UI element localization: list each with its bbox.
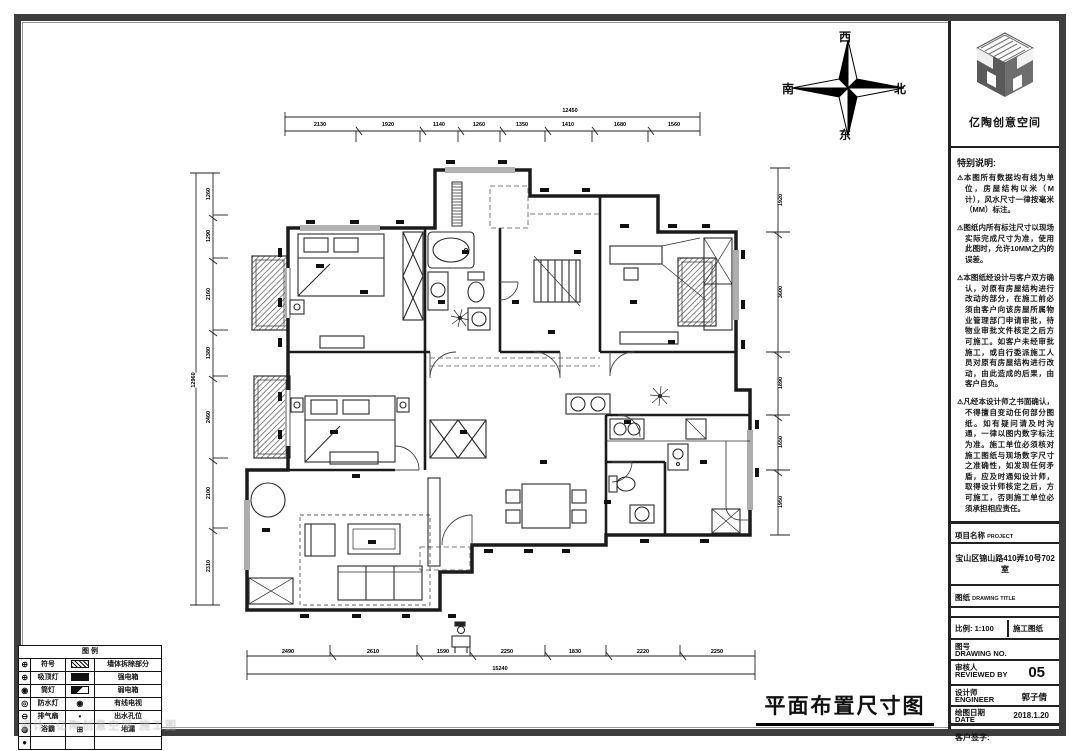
special-notes: 特别说明: ⚠本图所有数据均有线为单位，房屋结构以米（M 计），风水尺寸一律按毫… — [951, 150, 1059, 524]
basin-icon — [630, 505, 654, 523]
dimension-label: 2220 — [637, 649, 649, 655]
ceiling-dashed-lines — [420, 186, 600, 570]
watermark: 设计©亿陶创意空间 施工图 — [20, 717, 320, 733]
toilet-icon — [468, 272, 484, 302]
hatch-swatch-icon — [71, 660, 89, 668]
compass-north-label: 北 — [894, 80, 906, 97]
dimension-label: 2610 — [367, 649, 379, 655]
dimension-label: 1260 — [206, 188, 212, 200]
project-label-row: 项目名称 PROJECT — [951, 524, 1059, 544]
project-label-en: PROJECT — [987, 534, 1013, 540]
project-value-row: 宝山区锦山路410弄10号702室 — [951, 544, 1059, 586]
dimension-label: 1560 — [668, 122, 680, 128]
dimension-label: 2460 — [206, 411, 212, 423]
designer-value: 郭子倩 — [1021, 691, 1047, 703]
legend-symbol — [65, 659, 95, 672]
legend-symbol: ◎ — [19, 698, 31, 711]
project-address: 宝山区锦山路410弄10号702室 — [955, 553, 1055, 575]
legend-label: 强电箱 — [95, 672, 162, 685]
dimension-label: 2100 — [206, 487, 212, 499]
legend-label — [95, 737, 162, 750]
legend-label: 吸顶灯 — [31, 672, 65, 685]
outer-walls — [247, 170, 750, 610]
coffee-table-icon — [348, 524, 400, 554]
legend-symbol: ● — [19, 737, 31, 750]
drawing-sheet: 1245021301920114012601350141016801560129… — [0, 0, 1080, 751]
side-cabinet-icon — [249, 578, 293, 604]
dimension-label: 1920 — [778, 194, 784, 206]
balcony-hatch — [252, 256, 716, 458]
counter-rounded — [726, 441, 748, 520]
legend-label: 有线电视 — [95, 698, 162, 711]
dimension-label: 2490 — [282, 649, 294, 655]
drawing-label-en: DRAWING TITLE — [972, 596, 1015, 602]
legend-symbol — [65, 672, 95, 685]
reviewer-value: 05 — [1028, 664, 1045, 681]
sofa-icon — [338, 566, 422, 600]
lamp-icon — [294, 304, 300, 310]
exhaust-fan-icon — [451, 309, 469, 327]
half-swatch-icon — [71, 686, 89, 694]
shower-icon — [712, 509, 740, 533]
dimension-label: 2310 — [206, 560, 212, 572]
dimension-label: 1410 — [562, 122, 574, 128]
vanity-sink-icon — [428, 272, 448, 310]
legend-label: 墙体拆除部分 — [95, 659, 162, 672]
kitchen-sink-icon — [668, 444, 688, 470]
legend-row: ◉筒灯弱电箱 — [19, 685, 162, 698]
dimension-label: 1680 — [614, 122, 626, 128]
dimension-label: 15240 — [492, 666, 507, 672]
legend-label — [31, 737, 65, 750]
legend-symbol: ⊕ — [19, 672, 31, 685]
fridge-icon — [686, 419, 706, 439]
date-value: 2018.1.20 — [1013, 711, 1049, 720]
signature-label: 客户签字: — [955, 733, 990, 742]
legend-label: 防水灯 — [31, 698, 65, 711]
note-item: ⚠图纸内所有标注尺寸以现场实际完成尺寸为准，使用此图时，允许10MM之内的误差。 — [957, 223, 1054, 266]
note-item: ⚠本图纸经设计与客户双方确认，对原有房屋结构进行改动的部分，在施工前必须由客户向… — [957, 273, 1054, 390]
wardrobe-icon — [403, 232, 423, 320]
scale-label: 比例: — [955, 624, 973, 633]
legend-table: 图 例 ⊕符号墙体拆除部分⊕吸顶灯强电箱◉筒灯弱电箱◎防水灯◉有线电视⊖排气扇•… — [18, 645, 162, 750]
legend-symbol: ⊕ — [19, 659, 31, 672]
dimension-label: 1350 — [516, 122, 528, 128]
dimension-label: 1950 — [778, 496, 784, 508]
dimension-label: 1290 — [206, 230, 212, 242]
legend-label: 符号 — [31, 659, 65, 672]
legend-label: 筒灯 — [31, 685, 65, 698]
legend-symbol: ◉ — [19, 685, 31, 698]
note-item: ⚠本图所有数据均有线为单位，房屋结构以米（M 计），风水尺寸一律按毫米（MM）标… — [957, 173, 1054, 216]
dimension-label: 2160 — [206, 288, 212, 300]
legend-row: ⊕吸顶灯强电箱 — [19, 672, 162, 685]
scale-row: 比例: 1:100 施工图纸 — [951, 618, 1059, 640]
legend-title: 图 例 — [19, 646, 162, 659]
reviewer-row: 审核人 REVIEWED BY 05 — [951, 661, 1059, 686]
entry-figure-icon — [452, 622, 470, 653]
dimension-label: 2250 — [501, 649, 513, 655]
dimension-label: 1260 — [473, 122, 485, 128]
legend-symbol — [65, 737, 95, 750]
dimension-label: 12960 — [191, 372, 197, 387]
dimension-label: 3600 — [778, 286, 784, 298]
dining-table-icon — [506, 484, 586, 528]
notes-list: ⚠本图所有数据均有线为单位，房屋结构以米（M 计），风水尺寸一律按毫米（MM）标… — [957, 173, 1054, 514]
notes-title: 特别说明: — [957, 156, 1054, 169]
round-table-icon — [251, 483, 285, 517]
dimension-label: 1140 — [433, 122, 445, 128]
logo-section: 亿陶创意空间 — [951, 21, 1059, 148]
title-block-panel: 亿陶创意空间 特别说明: ⚠本图所有数据均有线为单位，房屋结构以米（M 计），风… — [948, 21, 1059, 729]
brand-name: 亿陶创意空间 — [951, 114, 1059, 130]
toilet-icon — [609, 476, 635, 492]
legend-symbol: ◉ — [65, 698, 95, 711]
top-ticks — [356, 127, 654, 142]
drawing-title-value-row — [951, 608, 1059, 618]
armchair-icon — [305, 524, 335, 556]
project-label: 项目名称 — [955, 531, 985, 540]
plant-icon — [650, 386, 670, 406]
dimension-label: 2130 — [314, 122, 326, 128]
solid-swatch-icon — [71, 673, 89, 681]
dimension-label: 1380 — [206, 347, 212, 359]
washing-machine-icon — [468, 308, 490, 330]
legend-symbol — [65, 685, 95, 698]
nightstand-icon — [290, 300, 304, 314]
bed-icon — [298, 234, 384, 296]
dimension-label: 1650 — [778, 436, 784, 448]
legend-row: ⊕符号墙体拆除部分 — [19, 659, 162, 672]
stairs-icon — [534, 256, 580, 306]
date-row: 绘图日期 DATE 2018.1.20 — [951, 707, 1059, 726]
legend-row: ◎防水灯◉有线电视 — [19, 698, 162, 711]
drawing-title: 平面布置尺寸图 — [756, 690, 934, 726]
legend-label: 弱电箱 — [95, 685, 162, 698]
dimension-label: 1920 — [382, 122, 394, 128]
scale-value: 1:100 — [975, 624, 994, 633]
dimension-label: 1890 — [778, 377, 784, 389]
drawing-no-row: 图号 DRAWING NO. — [951, 640, 1059, 661]
rug-outline — [300, 515, 430, 605]
signature-row: 客户签字: — [951, 726, 1059, 747]
floor-plan-drawing — [0, 0, 1080, 751]
dimension-label: 2250 — [711, 649, 723, 655]
legend-row: ● — [19, 737, 162, 750]
drawing-title-label-row: 图纸 DRAWING TITLE — [951, 586, 1059, 608]
dimension-label: 1830 — [569, 649, 581, 655]
drawing-no-label-en: DRAWING NO. — [955, 651, 1055, 657]
drawing-label: 图纸 — [955, 593, 970, 602]
dimension-label: 1590 — [437, 649, 449, 655]
phase-value: 施工图纸 — [1007, 620, 1059, 637]
compass-rose — [792, 40, 904, 136]
pipe-shaft — [452, 182, 462, 226]
note-item: ⚠凡经本设计师之书面确认，不得擅自变动任何部分图纸。如有疑问请及时沟通，一律以图… — [957, 397, 1054, 514]
compass-east-label: 东 — [839, 126, 851, 143]
company-logo-icon — [969, 29, 1041, 107]
compass-west-label: 西 — [839, 28, 851, 45]
designer-row: 设计师 ENGINEER 郭子倩 — [951, 686, 1059, 707]
compass-south-label: 南 — [782, 80, 794, 97]
dimension-label: 12450 — [562, 108, 577, 114]
double-sink-vanity-icon — [566, 394, 610, 414]
dresser-icon — [320, 336, 364, 348]
closet-icon — [430, 420, 486, 458]
